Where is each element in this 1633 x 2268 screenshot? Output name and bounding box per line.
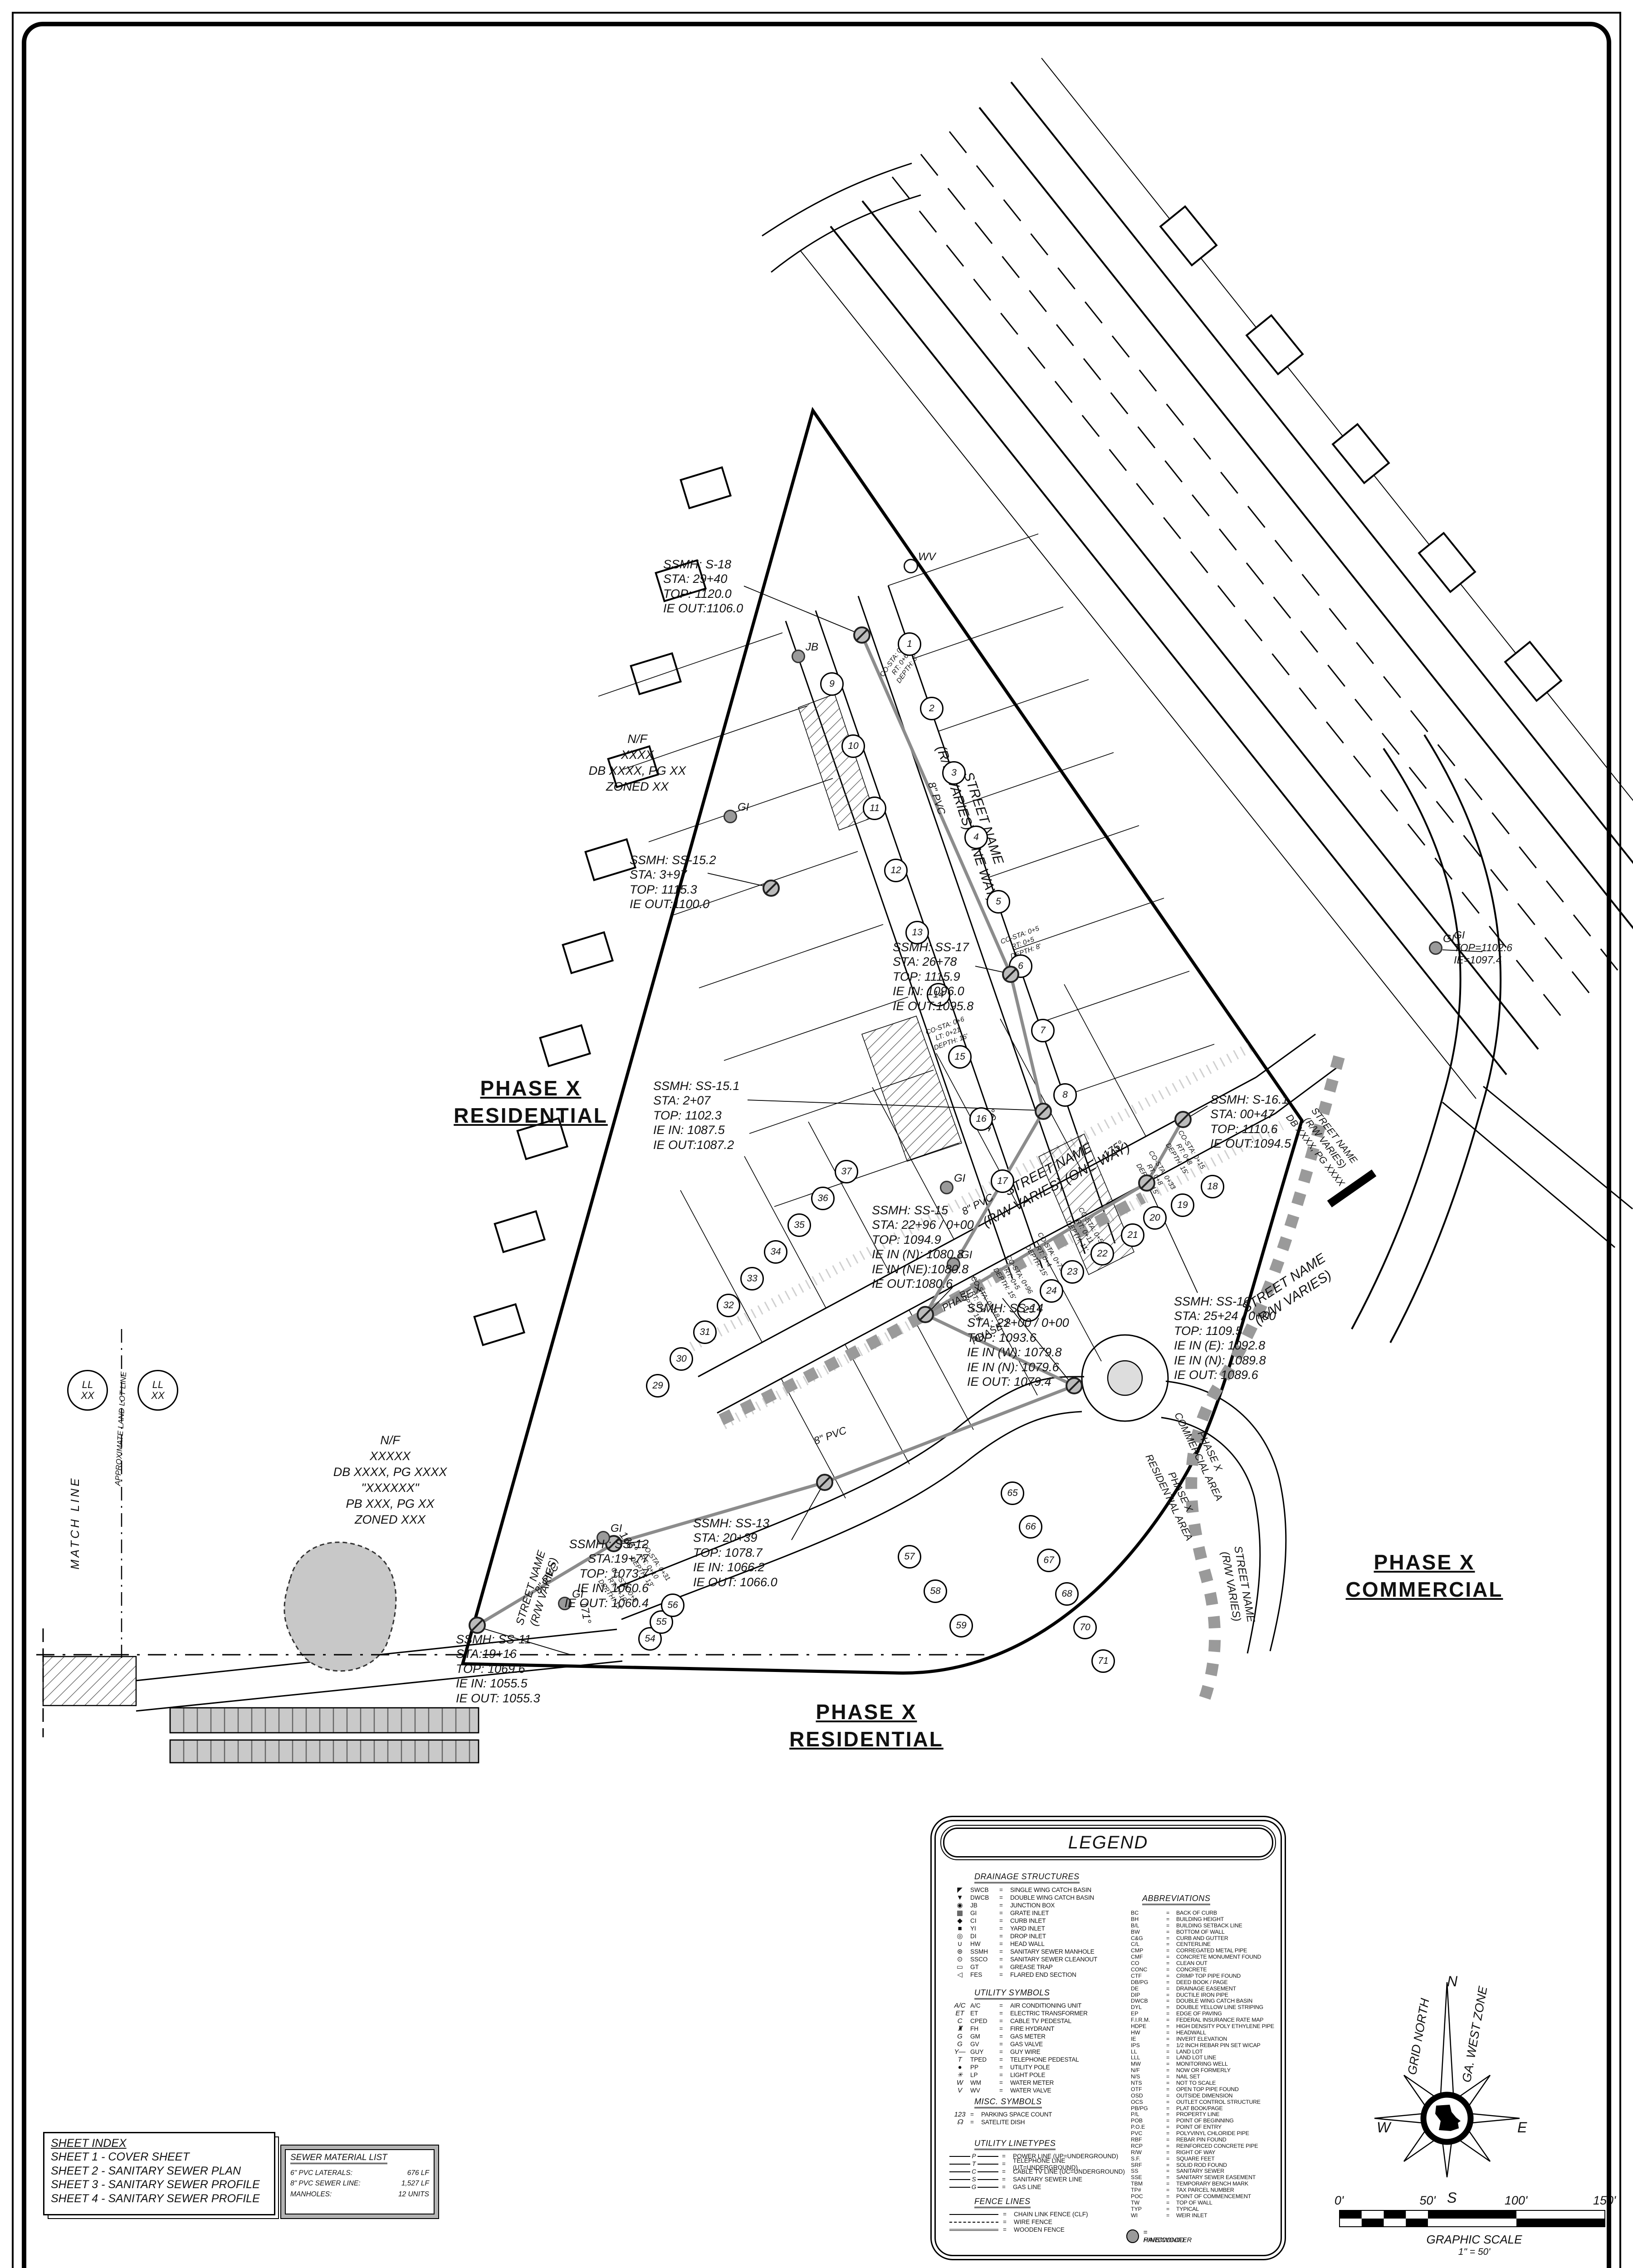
lot-number: 35 bbox=[787, 1213, 811, 1237]
abbr: LL bbox=[1131, 2048, 1166, 2055]
equals: = bbox=[1166, 2193, 1176, 2200]
abbr: DB/PG bbox=[1131, 1979, 1166, 1985]
abbr: CMP bbox=[1131, 1947, 1166, 1954]
legend-row: A/C A/C = AIR CONDITIONING UNIT bbox=[949, 2002, 1131, 2009]
point-label: JB bbox=[806, 641, 818, 654]
lot-number: 1 bbox=[898, 632, 921, 656]
legend-row: C CPED = CABLE TV PEDESTAL bbox=[949, 2017, 1131, 2025]
manhole-callout: SSMH: SS-11 STA:19+16 TOP: 1069.6 IE IN:… bbox=[456, 1632, 540, 1706]
tree-desc: = PINE/CONIFER bbox=[1144, 2229, 1193, 2244]
lot-number: 23 bbox=[1061, 1260, 1084, 1284]
point-symbol-icon bbox=[792, 650, 805, 663]
drainage-symbol-icon: ◁ bbox=[949, 1971, 970, 1978]
abbr-desc: PLAT BOOK/PAGE bbox=[1176, 2105, 1276, 2112]
abbr-desc: EDGE OF PAVING bbox=[1176, 2010, 1276, 2017]
lot-number: 5 bbox=[987, 890, 1010, 914]
legend-abbr: TPED bbox=[970, 2056, 999, 2063]
manhole-callout: SSMH : SS-12 STA:19+77 TOP: 1073.7 IE IN… bbox=[564, 1537, 649, 1610]
legend-desc: CABLE TV LINE (UC=UNDERGROUND) bbox=[1013, 2168, 1125, 2175]
misc-symbols-list: 123 = PARKING SPACE COUNT ☊ = SATELITE D… bbox=[949, 2111, 1131, 2126]
abbr: MW bbox=[1131, 2061, 1166, 2067]
equals: = bbox=[1166, 2017, 1176, 2023]
equals: = bbox=[1166, 1973, 1176, 1979]
legend-abbr: GI bbox=[970, 1910, 999, 1916]
abbreviation-row: OSD = OUTSIDE DIMENSION bbox=[1131, 2092, 1276, 2099]
point-label: GI bbox=[954, 1172, 965, 1185]
drainage-symbol-icon: ⊛ bbox=[949, 1948, 970, 1955]
point-symbol-icon bbox=[469, 1617, 486, 1634]
equals: = bbox=[1166, 2023, 1176, 2029]
legend-abbr: GV bbox=[970, 2041, 999, 2048]
lot-number: 3 bbox=[942, 761, 966, 785]
point-label: GI bbox=[611, 1522, 622, 1535]
equals: = bbox=[1166, 2168, 1176, 2174]
line-letter: C bbox=[970, 2168, 978, 2175]
drainage-symbol-icon: ■ bbox=[949, 1925, 970, 1932]
equals: = bbox=[1002, 2160, 1013, 2167]
equals: = bbox=[1003, 2226, 1014, 2233]
abbr: DWCB bbox=[1131, 1998, 1166, 2004]
sheet-index-item: SHEET 4 - SANITARY SEWER PROFILE bbox=[51, 2192, 268, 2206]
fence-lines-list: = CHAIN LINK FENCE (CLF) = WIRE FENCE = … bbox=[949, 2210, 1131, 2234]
abbreviation-row: OCS = OUTLET CONTROL STRUCTURE bbox=[1131, 2099, 1276, 2105]
legend-desc: WATER METER bbox=[1010, 2079, 1131, 2086]
equals: = bbox=[1166, 1916, 1176, 1922]
abbr-desc: BUILDING HEIGHT bbox=[1176, 1916, 1276, 1922]
lot-number: 57 bbox=[898, 1545, 921, 1569]
line-sample-icon bbox=[978, 2171, 998, 2172]
utility-symbol-icon: T bbox=[949, 2056, 970, 2063]
equals: = bbox=[1166, 2048, 1176, 2055]
lot-number: 21 bbox=[1121, 1223, 1144, 1247]
abbr-desc: TOP OF WALL bbox=[1176, 2200, 1276, 2206]
abbr-desc: 1/2 INCH REBAR PIN SET W/CAP bbox=[1176, 2042, 1276, 2048]
abbreviation-row: PVC = POLYVINYL CHLORIDE PIPE bbox=[1131, 2130, 1276, 2136]
drainage-symbol-icon: ◤ bbox=[949, 1887, 970, 1893]
legend-desc: SANITARY SEWER LINE bbox=[1013, 2176, 1082, 2183]
linetype-row: C = CABLE TV LINE (UC=UNDERGROUND) bbox=[949, 2168, 1131, 2175]
abbr-desc: POINT OF ENTRY bbox=[1176, 2124, 1276, 2130]
compass-rose-icon bbox=[1338, 1964, 1574, 2263]
equals: = bbox=[1166, 2200, 1176, 2206]
equals: = bbox=[1166, 2042, 1176, 2048]
utility-symbol-icon: Y— bbox=[949, 2048, 970, 2055]
legend-desc: GREASE TRAP bbox=[1010, 1964, 1131, 1970]
line-letter: S bbox=[970, 2176, 978, 2183]
equals: = bbox=[1166, 1910, 1176, 1916]
sheet-index-title: SHEET INDEX bbox=[51, 2137, 268, 2150]
legend-row: ▼ DWCB = DOUBLE WING CATCH BASIN bbox=[949, 1894, 1131, 1901]
abbr: CMF bbox=[1131, 1954, 1166, 1960]
manhole-callout: SSMH: SS-13 STA: 20+39 TOP: 1078.7 IE IN… bbox=[693, 1516, 777, 1589]
equals: = bbox=[1166, 1998, 1176, 2004]
legend-abbr: WM bbox=[970, 2079, 999, 2086]
legend-abbr: PP bbox=[970, 2064, 999, 2071]
abbr: WI bbox=[1131, 2212, 1166, 2219]
plan-sheet: PHASE X RESIDENTIAL PHASE X COMMERCIAL P… bbox=[0, 0, 1633, 2268]
legend-row: W WM = WATER METER bbox=[949, 2079, 1131, 2087]
abbr: TP# bbox=[1131, 2187, 1166, 2193]
utility-symbol-icon: ● bbox=[949, 2064, 970, 2071]
abbreviation-row: S.F. = SQUARE FEET bbox=[1131, 2156, 1276, 2162]
phase-label-commercial: PHASE X COMMERCIAL bbox=[1315, 1549, 1533, 1603]
abbr: DE bbox=[1131, 1985, 1166, 1992]
abbr-desc: TAX PARCEL NUMBER bbox=[1176, 2187, 1276, 2193]
abbreviation-row: BW = BOTTOM OF WALL bbox=[1131, 1929, 1276, 1935]
manhole-callout: SSMH: S-16.1 STA: 00+47 TOP: 1110.6 IE O… bbox=[1210, 1092, 1291, 1151]
equals: = bbox=[1166, 2054, 1176, 2061]
lot-number: 4 bbox=[964, 826, 988, 849]
abbreviation-row: C&G = CURB AND GUTTER bbox=[1131, 1935, 1276, 1941]
legend-row: ET ET = ELECTRIC TRANSFORMER bbox=[949, 2009, 1131, 2017]
equals: = bbox=[999, 2064, 1010, 2071]
line-letter: P bbox=[970, 2153, 978, 2160]
equals: = bbox=[999, 2002, 1010, 2009]
legend-row: ✳ LP = LIGHT POLE bbox=[949, 2071, 1131, 2079]
abbr-desc: WEIR INLET bbox=[1176, 2212, 1276, 2219]
material-list-row: MANHOLES: 12 UNITS bbox=[290, 2189, 429, 2200]
abbr: HW bbox=[1131, 2029, 1166, 2036]
material-value: 1,527 LF bbox=[401, 2178, 429, 2189]
equals: = bbox=[999, 2056, 1010, 2063]
drainage-symbol-icon: ∪ bbox=[949, 1941, 970, 1947]
sheet-index-box: SHEET INDEX SHEET 1 - COVER SHEETSHEET 2… bbox=[43, 2132, 275, 2215]
equals: = bbox=[999, 2033, 1010, 2040]
manhole-callout: SSMH: SS-16 STA: 25+24 / 0+00 TOP: 1109.… bbox=[1174, 1294, 1276, 1382]
legend-desc: YARD INLET bbox=[1010, 1925, 1131, 1932]
point-label: GI bbox=[1443, 933, 1454, 945]
equals: = bbox=[999, 2041, 1010, 2048]
abbr: OCS bbox=[1131, 2099, 1166, 2105]
material-label: MANHOLES: bbox=[290, 2189, 332, 2200]
line-sample-icon bbox=[978, 2187, 998, 2188]
abbr-desc: LAND LOT LINE bbox=[1176, 2054, 1276, 2061]
legend-abbr: HW bbox=[970, 1941, 999, 1947]
legend-abbr: ET bbox=[970, 2010, 999, 2017]
tree-symbol-icon bbox=[1126, 2229, 1139, 2243]
abbr: C/L bbox=[1131, 1941, 1166, 1947]
point-symbol-icon bbox=[1174, 1111, 1192, 1128]
legend-title: LEGEND bbox=[943, 1828, 1273, 1857]
sheet-index-item: SHEET 2 - SANITARY SEWER PLAN bbox=[51, 2164, 268, 2178]
lot-number: 65 bbox=[1001, 1481, 1024, 1505]
abbreviation-row: P.O.E = POINT OF ENTRY bbox=[1131, 2124, 1276, 2130]
abbr-desc: SQUARE FEET bbox=[1176, 2156, 1276, 2162]
abbreviation-row: SRF = SOLID ROD FOUND bbox=[1131, 2162, 1276, 2168]
equals: = bbox=[999, 1941, 1010, 1947]
equals: = bbox=[999, 2072, 1010, 2078]
legend-row: ♜ FH = FIRE HYDRANT bbox=[949, 2025, 1131, 2033]
abbr: P.O.E bbox=[1131, 2124, 1166, 2130]
abbr-desc: SANITARY SEWER EASEMENT bbox=[1176, 2174, 1276, 2180]
utility-symbol-icon: C bbox=[949, 2018, 970, 2024]
manhole-callout: SSMH: SS-15.1 STA: 2+07 TOP: 1102.3 IE I… bbox=[653, 1079, 740, 1152]
abbr-desc: CENTERLINE bbox=[1176, 1941, 1276, 1947]
ramp-road bbox=[1352, 735, 1633, 1343]
abbr-desc: INVERT ELEVATION bbox=[1176, 2036, 1276, 2042]
utility-linetypes-heading: UTILITY LINETYPES bbox=[974, 2139, 1056, 2150]
material-value: 12 UNITS bbox=[398, 2189, 429, 2200]
legend-abbr: JB bbox=[970, 1902, 999, 1909]
manhole-callout: GI TOP=1102.6 IE=1097.4 bbox=[1454, 929, 1512, 967]
lot-number: 56 bbox=[661, 1593, 684, 1617]
point-label: WV bbox=[918, 551, 936, 563]
legend-row: ▦ GI = GRATE INLET bbox=[949, 1909, 1131, 1917]
abbr: SSE bbox=[1131, 2174, 1166, 2180]
fence-line-sample-icon bbox=[949, 2214, 998, 2215]
abbr: TW bbox=[1131, 2200, 1166, 2206]
lot-number: 71 bbox=[1091, 1649, 1115, 1673]
equals: = bbox=[999, 1917, 1010, 1924]
legend-desc: SINGLE WING CATCH BASIN bbox=[1010, 1887, 1131, 1893]
point-symbol-icon bbox=[1035, 1103, 1052, 1120]
linetype-row: S = SANITARY SEWER LINE bbox=[949, 2175, 1131, 2183]
legend-row: ◤ SWCB = SINGLE WING CATCH BASIN bbox=[949, 1886, 1131, 1894]
drainage-structures-heading: DRAINAGE STRUCTURES bbox=[974, 1872, 1080, 1883]
abbr-desc: OPEN TOP PIPE FOUND bbox=[1176, 2086, 1276, 2092]
material-list-row: 8" PVC SEWER LINE: 1,527 LF bbox=[290, 2178, 429, 2189]
sheet-index-items: SHEET 1 - COVER SHEETSHEET 2 - SANITARY … bbox=[51, 2150, 268, 2205]
drainage-symbol-icon: ◎ bbox=[949, 1933, 970, 1940]
abbr-desc: DOUBLE YELLOW LINE STRIPING bbox=[1176, 2004, 1276, 2010]
fence-line-sample-icon bbox=[949, 2229, 998, 2231]
fence-lines-heading: FENCE LINES bbox=[974, 2197, 1031, 2208]
abbr-desc: OUTLET CONTROL STRUCTURE bbox=[1176, 2099, 1276, 2105]
abbr-desc: BOTTOM OF WALL bbox=[1176, 1929, 1276, 1935]
abbr-desc: DUCTILE IRON PIPE bbox=[1176, 1992, 1276, 1998]
linetype-row: T = TELEPHONE LINE (UT=UNDERGROUND) bbox=[949, 2160, 1131, 2168]
equals: = bbox=[1166, 2105, 1176, 2112]
abbreviation-row: DYL = DOUBLE YELLOW LINE STRIPING bbox=[1131, 2004, 1276, 2010]
abbreviation-row: TYP = TYPICAL bbox=[1131, 2206, 1276, 2212]
lot-number: 32 bbox=[717, 1294, 740, 1317]
fence-row: = WOODEN FENCE bbox=[949, 2226, 1131, 2234]
equals: = bbox=[970, 2111, 981, 2118]
equals: = bbox=[999, 1910, 1010, 1916]
abbreviation-row: MW = MONITORING WELL bbox=[1131, 2061, 1276, 2067]
lot-number: 59 bbox=[949, 1614, 973, 1637]
legend-row: G GV = GAS VALVE bbox=[949, 2040, 1131, 2048]
utility-symbols-heading: UTILITY SYMBOLS bbox=[974, 1988, 1050, 1999]
equals: = bbox=[1166, 1922, 1176, 1929]
drainage-structures-list: ◤ SWCB = SINGLE WING CATCH BASIN ▼ DWCB … bbox=[949, 1886, 1131, 1979]
equals: = bbox=[999, 2010, 1010, 2017]
equals: = bbox=[1003, 2211, 1014, 2218]
abbr: EP bbox=[1131, 2010, 1166, 2017]
equals: = bbox=[1003, 2219, 1014, 2225]
equals: = bbox=[1166, 1960, 1176, 1966]
equals: = bbox=[1166, 2067, 1176, 2073]
legend-desc: SATELITE DISH bbox=[981, 2119, 1131, 2126]
equals: = bbox=[1166, 2080, 1176, 2086]
manhole-callout: SSMH: SS-14 STA: 22+00 / 0+00 TOP: 1093.… bbox=[967, 1301, 1069, 1389]
equals: = bbox=[1166, 2086, 1176, 2092]
lot-number: 66 bbox=[1019, 1515, 1042, 1539]
lot-number: 33 bbox=[740, 1267, 764, 1290]
abbr: CTF bbox=[1131, 1973, 1166, 1979]
abbr: PB/PG bbox=[1131, 2105, 1166, 2112]
abbr-desc: REBAR PIN FOUND bbox=[1176, 2136, 1276, 2143]
abbr-desc: TEMPORARY BENCH MARK bbox=[1176, 2180, 1276, 2187]
equals: = bbox=[1166, 2099, 1176, 2105]
abbreviation-row: WI = WEIR INLET bbox=[1131, 2212, 1276, 2219]
legend-desc: GAS LINE bbox=[1013, 2184, 1041, 2190]
legend-desc: WOODEN FENCE bbox=[1014, 2226, 1065, 2233]
legend-abbr: YI bbox=[970, 1925, 999, 1932]
equals: = bbox=[1166, 1947, 1176, 1954]
abbr-desc: SOLID ROD FOUND bbox=[1176, 2162, 1276, 2168]
match-line-label: MATCH LINE bbox=[68, 1476, 82, 1569]
abbr: CO bbox=[1131, 1960, 1166, 1966]
abbr-desc: CURB AND GUTTER bbox=[1176, 1935, 1276, 1941]
point-symbol-icon bbox=[724, 810, 737, 823]
scale-tick-label: 150' bbox=[1593, 2194, 1616, 2208]
legend-row: V WV = WATER VALVE bbox=[949, 2087, 1131, 2094]
abbreviation-row: IE = INVERT ELEVATION bbox=[1131, 2036, 1276, 2042]
line-sample-icon bbox=[949, 2179, 970, 2180]
legend-desc: GUY WIRE bbox=[1010, 2048, 1131, 2055]
line-sample-icon bbox=[949, 2171, 970, 2172]
lot-number: 31 bbox=[693, 1320, 717, 1344]
equals: = bbox=[999, 1956, 1010, 1963]
legend-desc: LIGHT POLE bbox=[1010, 2072, 1131, 2078]
equals: = bbox=[1166, 2143, 1176, 2149]
utility-symbol-icon: ♜ bbox=[949, 2025, 970, 2032]
abbreviation-row: HW = HEADWALL bbox=[1131, 2029, 1276, 2036]
point-label: GI bbox=[738, 801, 749, 814]
line-sample-icon bbox=[949, 2164, 970, 2165]
equals: = bbox=[1002, 2153, 1013, 2160]
west-label: W bbox=[1377, 2118, 1390, 2136]
abbr: BC bbox=[1131, 1910, 1166, 1916]
equals: = bbox=[999, 2025, 1010, 2032]
equals: = bbox=[1166, 1966, 1176, 1973]
legend-abbr: LP bbox=[970, 2072, 999, 2078]
point-symbol-icon bbox=[1138, 1174, 1155, 1192]
abbr: OSD bbox=[1131, 2092, 1166, 2099]
abbr-desc: SANITARY SEWER bbox=[1176, 2168, 1276, 2174]
equals: = bbox=[1166, 2004, 1176, 2010]
legend-desc: PARKING SPACE COUNT bbox=[981, 2111, 1131, 2118]
lot-number: 10 bbox=[841, 734, 865, 758]
lot-number: 30 bbox=[670, 1347, 693, 1371]
drainage-symbol-icon: ◉ bbox=[949, 1902, 970, 1909]
legend-desc: FLARED END SECTION bbox=[1010, 1971, 1131, 1978]
line-letter: T bbox=[970, 2160, 978, 2167]
abbreviation-row: BH = BUILDING HEIGHT bbox=[1131, 1916, 1276, 1922]
fence-row: = WIRE FENCE bbox=[949, 2218, 1131, 2226]
abbr-desc: CORREGATED METAL PIPE bbox=[1176, 1947, 1276, 1954]
legend-abbr: FH bbox=[970, 2025, 999, 2032]
abbr: NTS bbox=[1131, 2080, 1166, 2086]
legend-row: ◉ JB = JUNCTION BOX bbox=[949, 1901, 1131, 1909]
legend-desc: DOUBLE WING CATCH BASIN bbox=[1010, 1894, 1131, 1901]
fence-row: = CHAIN LINK FENCE (CLF) bbox=[949, 2210, 1131, 2218]
abbr: BW bbox=[1131, 1929, 1166, 1935]
lot-number: 67 bbox=[1037, 1549, 1061, 1572]
manhole-callout: SSMH: SS-15 STA: 22+96 / 0+00 TOP: 1094.… bbox=[872, 1203, 974, 1291]
equals: = bbox=[1166, 2149, 1176, 2156]
point-symbol-icon bbox=[1429, 941, 1442, 955]
legend-abbr: GM bbox=[970, 2033, 999, 2040]
abbr-desc: BACK OF CURB bbox=[1176, 1910, 1276, 1916]
legend-abbr: SSCO bbox=[970, 1956, 999, 1963]
abbreviation-row: P/L = PROPERTY LINE bbox=[1131, 2112, 1276, 2118]
abbreviation-row: IPS = 1/2 INCH REBAR PIN SET W/CAP bbox=[1131, 2042, 1276, 2048]
lot-number: 19 bbox=[1171, 1193, 1194, 1217]
equals: = bbox=[1166, 2061, 1176, 2067]
manhole-callout: SSMH: S-18 STA: 29+40 TOP: 1120.0 IE OUT… bbox=[663, 557, 743, 616]
equals: = bbox=[1002, 2168, 1013, 2175]
abbreviation-row: CMF = CONCRETE MONUMENT FOUND bbox=[1131, 1954, 1276, 1960]
abbr-desc: PROPERTY LINE bbox=[1176, 2111, 1276, 2117]
legend-desc: SANITARY SEWER CLEANOUT bbox=[1010, 1956, 1131, 1963]
legend-abbr: GT bbox=[970, 1964, 999, 1970]
lot-number: 11 bbox=[863, 797, 886, 820]
abbr-desc: HIGH DENSITY POLY ETHYLENE PIPE bbox=[1176, 2023, 1276, 2029]
abbr: LLL bbox=[1131, 2054, 1166, 2061]
fence-line-sample-icon bbox=[949, 2222, 998, 2223]
line-sample-icon bbox=[978, 2156, 998, 2157]
legend-row: ▭ GT = GREASE TRAP bbox=[949, 1963, 1131, 1971]
equals: = bbox=[1166, 1935, 1176, 1941]
abbr-desc: NOT TO SCALE bbox=[1176, 2080, 1276, 2086]
abbr-desc: CONCRETE bbox=[1176, 1966, 1276, 1973]
abbr: P/L bbox=[1131, 2111, 1166, 2117]
abbreviation-row: LLL = LAND LOT LINE bbox=[1131, 2054, 1276, 2061]
lot-number: 16 bbox=[969, 1107, 993, 1131]
legend-desc: UTILITY POLE bbox=[1010, 2064, 1131, 2071]
graphic-scale-caption: GRAPHIC SCALE 1" = 50' bbox=[1406, 2233, 1542, 2258]
legend-box: LEGEND DRAINAGE STRUCTURES ◤ SWCB = SING… bbox=[934, 1820, 1282, 2256]
abbr-desc: TYPICAL bbox=[1176, 2206, 1276, 2212]
equals: = bbox=[1166, 2111, 1176, 2117]
abbreviation-row: DIP = DUCTILE IRON PIPE bbox=[1131, 1992, 1276, 1998]
nf-parcel-upper: N/F XXXX DB XXXX, PG XX ZONED XX bbox=[565, 731, 710, 795]
equals: = bbox=[1166, 2187, 1176, 2193]
lot-number: 8 bbox=[1053, 1083, 1077, 1107]
legend-abbr: DI bbox=[970, 1933, 999, 1940]
legend-abbr: GUY bbox=[970, 2048, 999, 2055]
tree-legend-item: = PINE/CONIFER bbox=[1126, 2229, 1193, 2244]
legend-row: T TPED = TELEPHONE PEDESTAL bbox=[949, 2056, 1131, 2063]
abbreviation-row: OTF = OPEN TOP PIPE FOUND bbox=[1131, 2086, 1276, 2092]
abbr: R/W bbox=[1131, 2149, 1166, 2156]
equals: = bbox=[1166, 2174, 1176, 2180]
abbr-desc: RIGHT OF WAY bbox=[1176, 2149, 1276, 2156]
scale-tick-label: 0' bbox=[1335, 2194, 1344, 2208]
equals: = bbox=[1166, 2010, 1176, 2017]
equals: = bbox=[1002, 2184, 1013, 2190]
sewer-material-list-box: SEWER MATERIAL LIST 6" PVC LATERALS: 676… bbox=[281, 2146, 438, 2218]
abbr-desc: DOUBLE WING CATCH BASIN bbox=[1176, 1998, 1276, 2004]
abbreviation-row: B/L = BUILDING SETBACK LINE bbox=[1131, 1922, 1276, 1929]
legend-row: ◁ FES = FLARED END SECTION bbox=[949, 1971, 1131, 1979]
abbreviation-row: RCP = REINFORCED CONCRETE PIPE bbox=[1131, 2143, 1276, 2149]
lot-number: 68 bbox=[1055, 1582, 1079, 1606]
equals: = bbox=[999, 1925, 1010, 1932]
abbreviation-row: TBM = TEMPORARY BENCH MARK bbox=[1131, 2180, 1276, 2187]
drainage-symbol-icon: ⊙ bbox=[949, 1956, 970, 1963]
lot-number: 2 bbox=[920, 697, 944, 720]
equals: = bbox=[999, 2087, 1010, 2094]
abbreviation-row: N/S = NAIL SET bbox=[1131, 2073, 1276, 2080]
legend-desc: SANITARY SEWER MANHOLE bbox=[1010, 1948, 1131, 1955]
legend-abbr: WV bbox=[970, 2087, 999, 2094]
equals: = bbox=[999, 1933, 1010, 1940]
equals: = bbox=[999, 1887, 1010, 1893]
line-sample-icon bbox=[978, 2164, 998, 2165]
